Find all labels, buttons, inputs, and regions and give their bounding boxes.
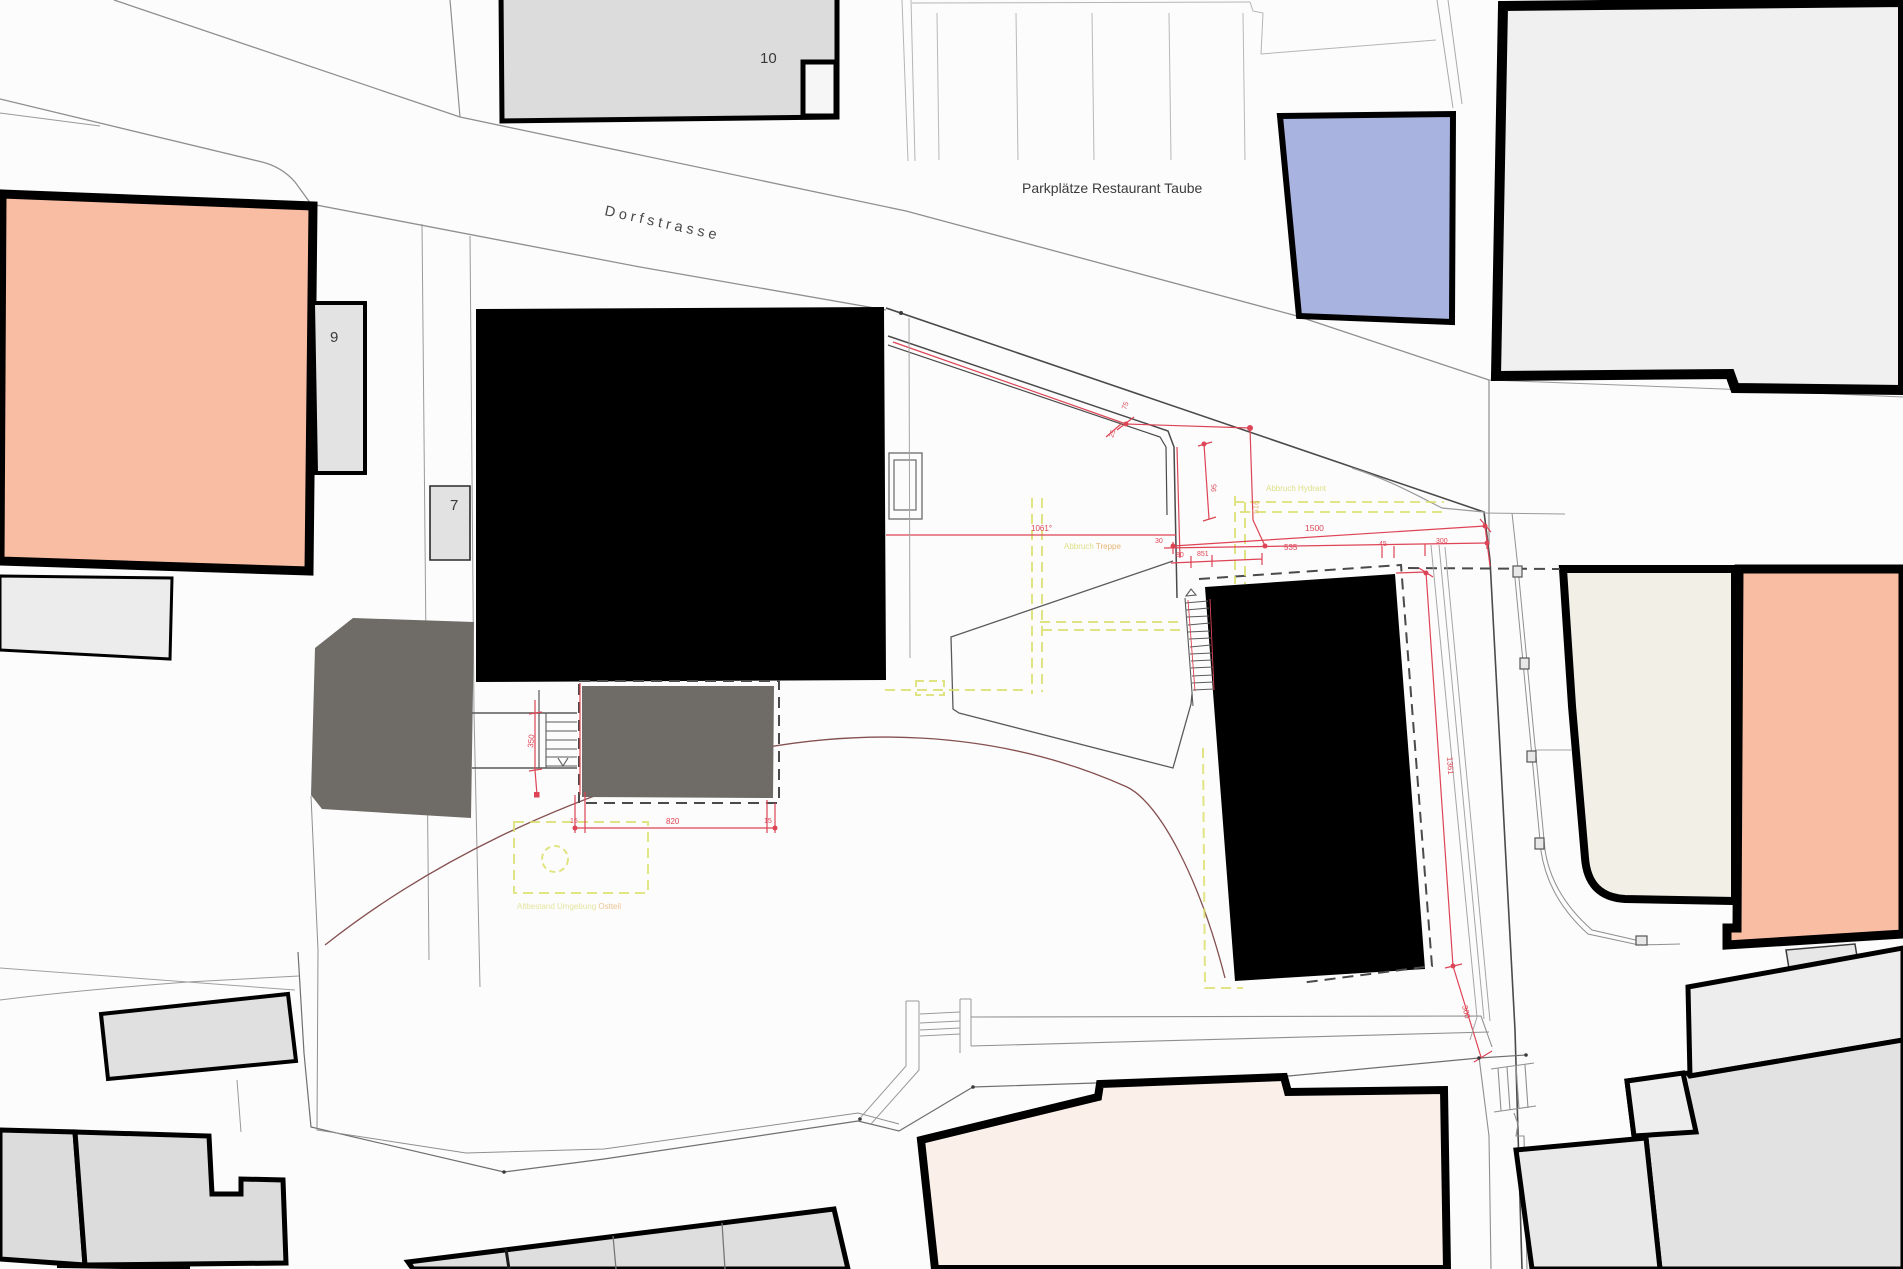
- svg-text:851: 851: [1197, 551, 1209, 558]
- svg-text:300: 300: [1436, 538, 1448, 545]
- svg-text:7: 7: [450, 497, 458, 514]
- svg-text:Abbruch Treppe: Abbruch Treppe: [1064, 542, 1121, 551]
- svg-text:80: 80: [1176, 552, 1184, 559]
- svg-text:1061°: 1061°: [1031, 524, 1052, 533]
- svg-text:15: 15: [764, 818, 772, 825]
- svg-text:9: 9: [330, 329, 338, 346]
- svg-text:350: 350: [526, 733, 536, 748]
- svg-text:15: 15: [570, 818, 578, 825]
- svg-text:1500: 1500: [1305, 523, 1324, 533]
- svg-text:10: 10: [760, 50, 777, 67]
- svg-text:535: 535: [1284, 543, 1298, 552]
- svg-text:Abbruch Hydrant: Abbruch Hydrant: [1266, 484, 1327, 493]
- svg-text:1361: 1361: [1445, 757, 1455, 776]
- svg-text:516: 516: [1251, 500, 1261, 514]
- svg-text:30: 30: [1155, 538, 1163, 545]
- svg-text:45: 45: [1379, 541, 1387, 548]
- svg-text:Altbestand Umgebung Ostteil: Altbestand Umgebung Ostteil: [517, 902, 621, 911]
- svg-text:820: 820: [666, 817, 680, 826]
- svg-text:95: 95: [1211, 484, 1219, 492]
- svg-text:Parkplätze Restaurant Taube: Parkplätze Restaurant Taube: [1022, 180, 1203, 196]
